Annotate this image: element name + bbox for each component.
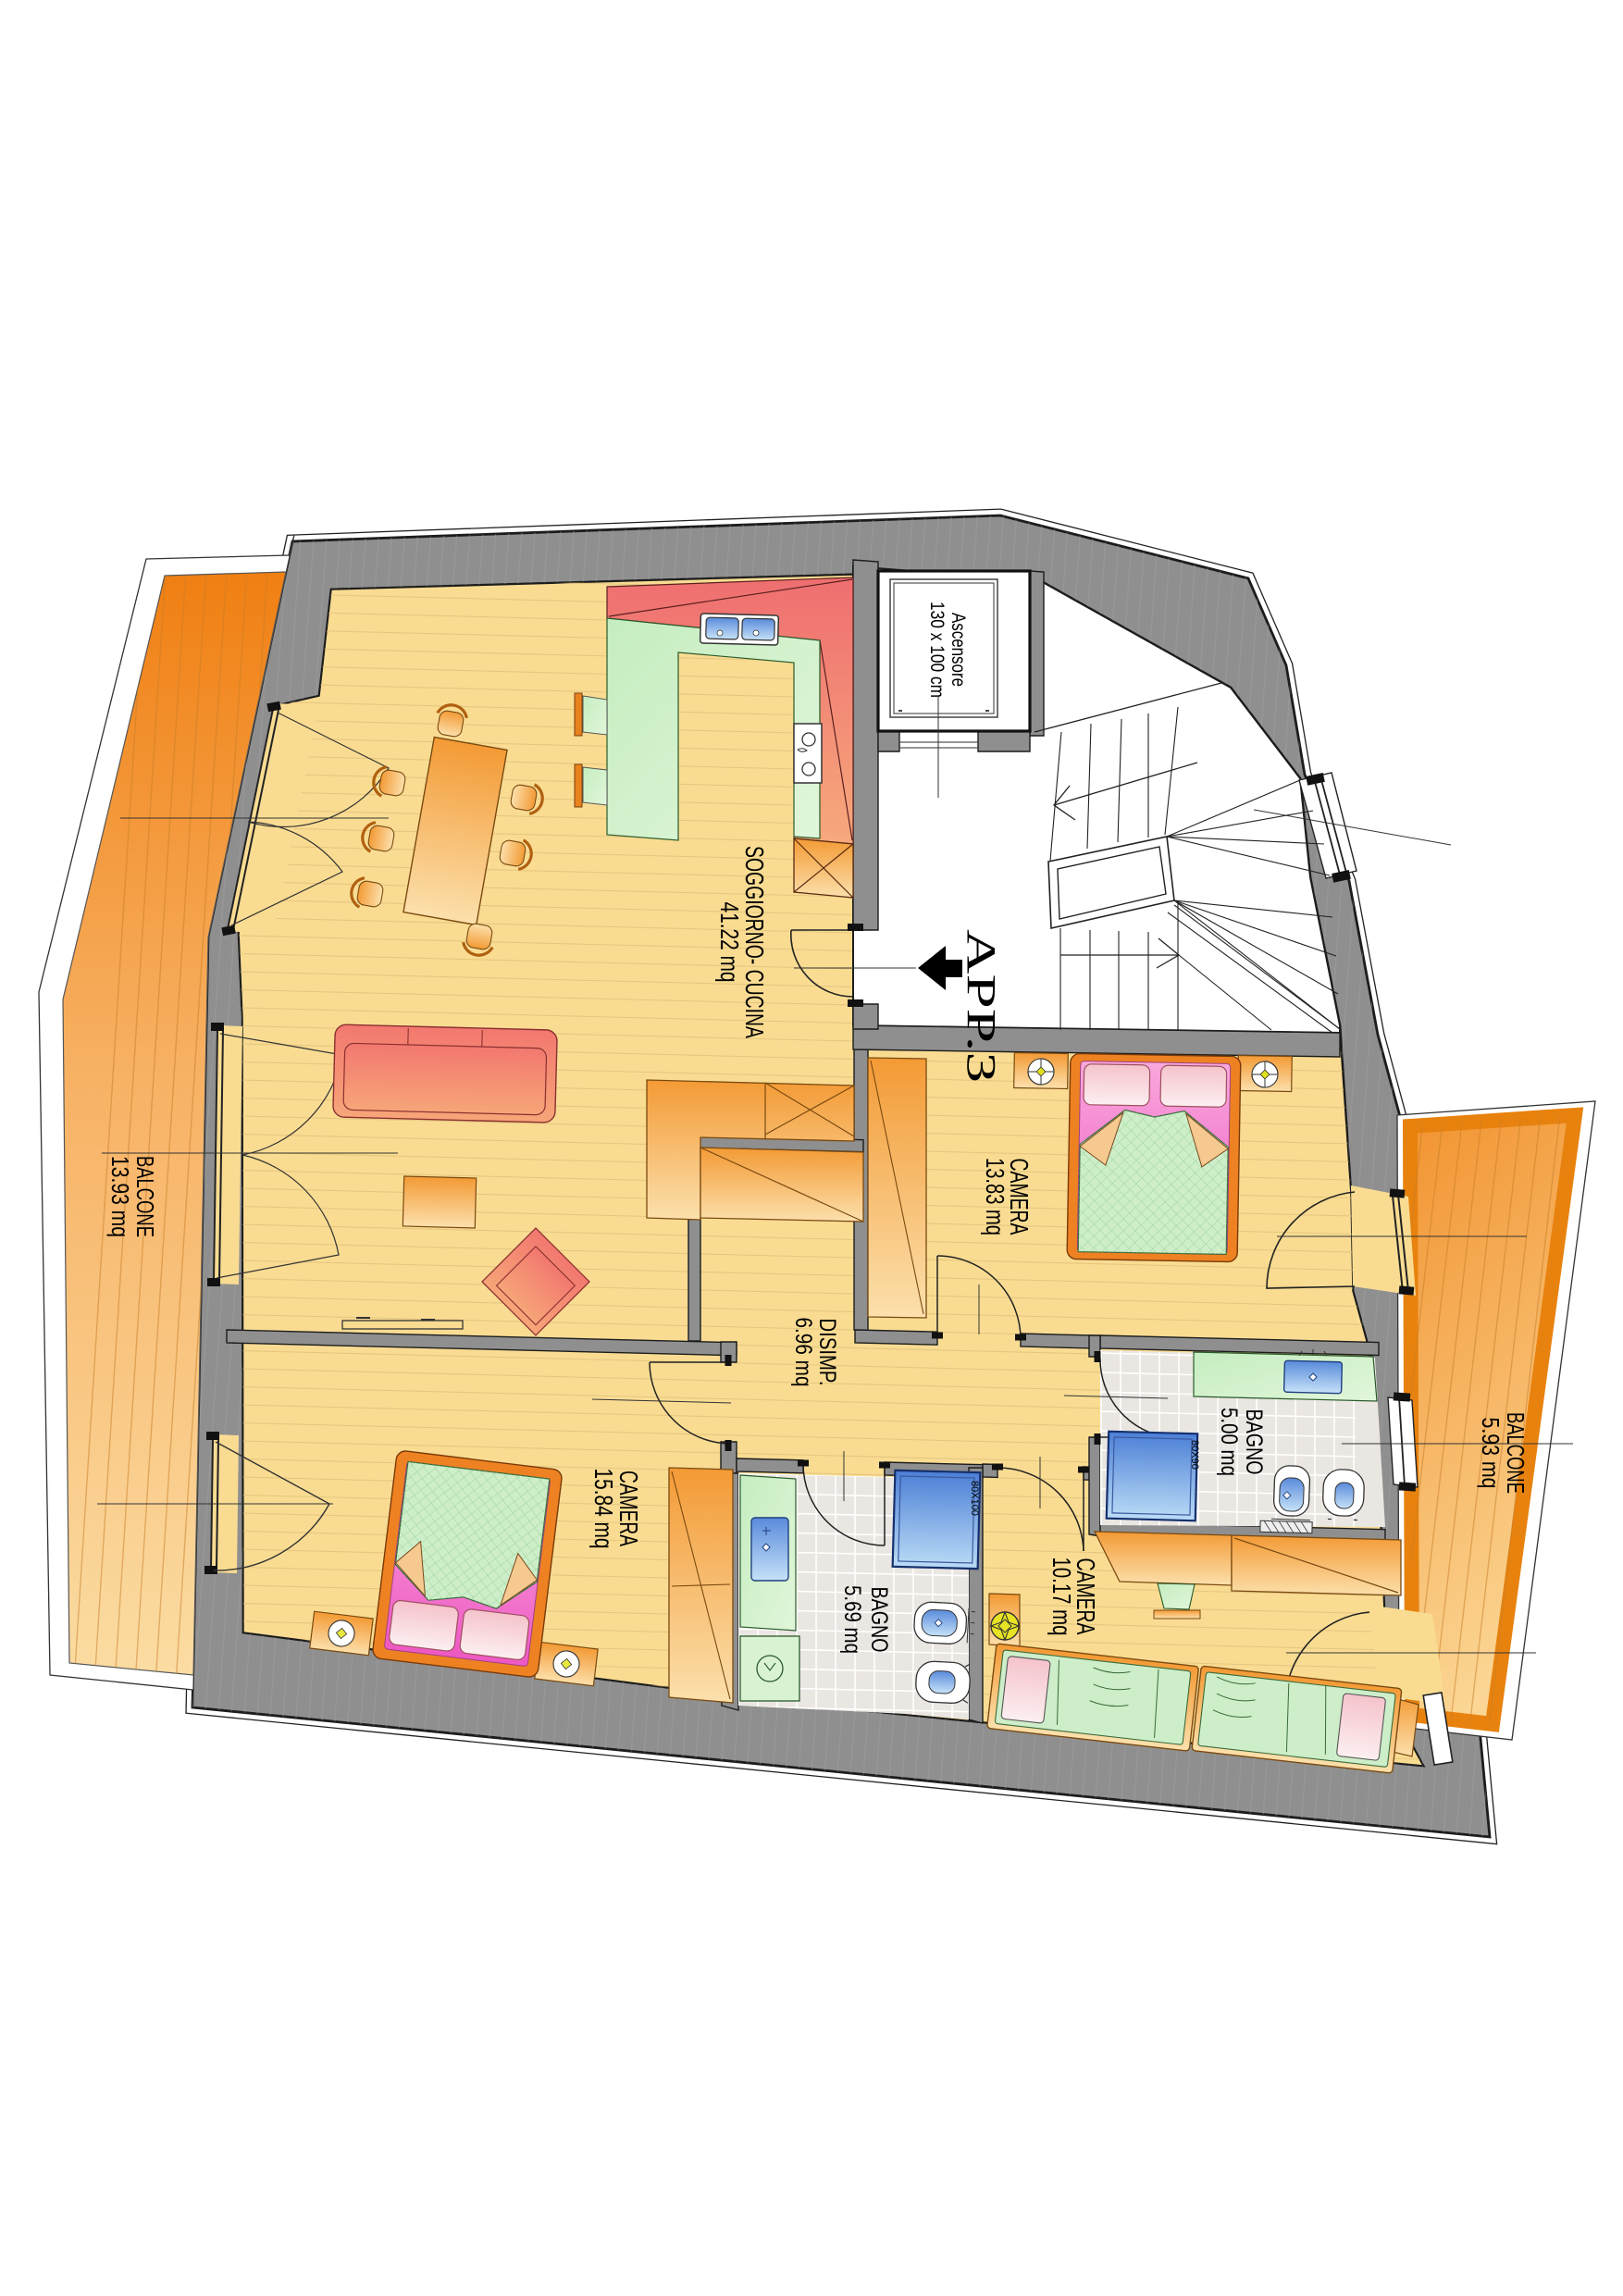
svg-text:6.96 mq: 6.96 mq [790,1318,816,1387]
svg-text:80X90: 80X90 [1189,1440,1200,1470]
svg-text:DISIMP.: DISIMP. [814,1319,840,1386]
svg-text:APP.3: APP.3 [959,929,1004,1083]
svg-text:13.93 mq: 13.93 mq [106,1156,134,1237]
svg-text:130 x 100 cm: 130 x 100 cm [926,602,948,698]
svg-text:BALCONE: BALCONE [1502,1412,1530,1494]
svg-text:10.17 mq: 10.17 mq [1047,1558,1076,1636]
svg-text:5.69 mq: 5.69 mq [839,1585,865,1654]
svg-text:15.84 mq: 15.84 mq [589,1469,618,1549]
svg-text:BAGNO: BAGNO [1241,1409,1267,1475]
svg-text:5.93 mq: 5.93 mq [1477,1418,1505,1489]
svg-text:41.22 mq: 41.22 mq [715,902,744,983]
svg-text:BAGNO: BAGNO [866,1587,892,1653]
svg-text:13.83 mq: 13.83 mq [981,1158,1010,1235]
svg-text:Ascensore: Ascensore [948,613,969,687]
svg-text:80X100: 80X100 [969,1481,980,1516]
svg-text:5.00 mq: 5.00 mq [1216,1408,1242,1476]
svg-text:BALCONE: BALCONE [131,1156,159,1237]
